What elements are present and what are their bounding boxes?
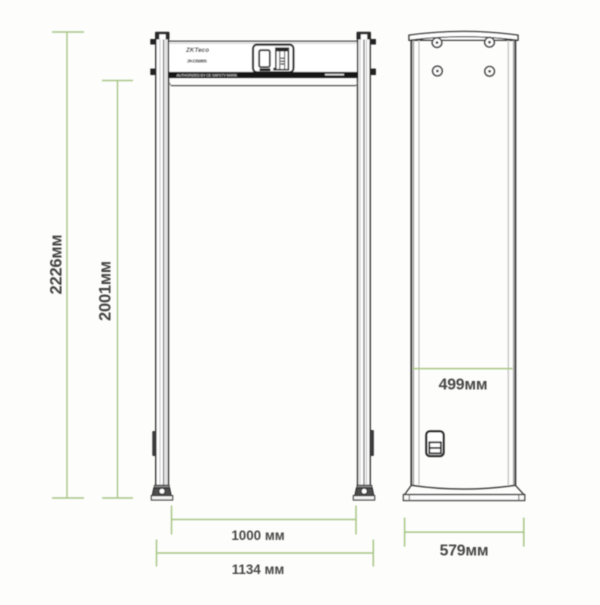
svg-text:2001мм: 2001мм bbox=[97, 261, 115, 321]
svg-text:2226мм: 2226мм bbox=[48, 235, 66, 295]
svg-text:ZK-D3180S: ZK-D3180S bbox=[187, 58, 208, 64]
svg-text:AUTHORIZED BY CE SAFETY MARK: AUTHORIZED BY CE SAFETY MARK bbox=[177, 73, 238, 77]
svg-text:1134 мм: 1134 мм bbox=[232, 562, 285, 577]
svg-text:ZKTeco: ZKTeco bbox=[185, 47, 209, 54]
svg-text:499мм: 499мм bbox=[439, 377, 488, 394]
svg-text:579мм: 579мм bbox=[440, 543, 489, 560]
svg-text:1000 мм: 1000 мм bbox=[231, 528, 284, 543]
